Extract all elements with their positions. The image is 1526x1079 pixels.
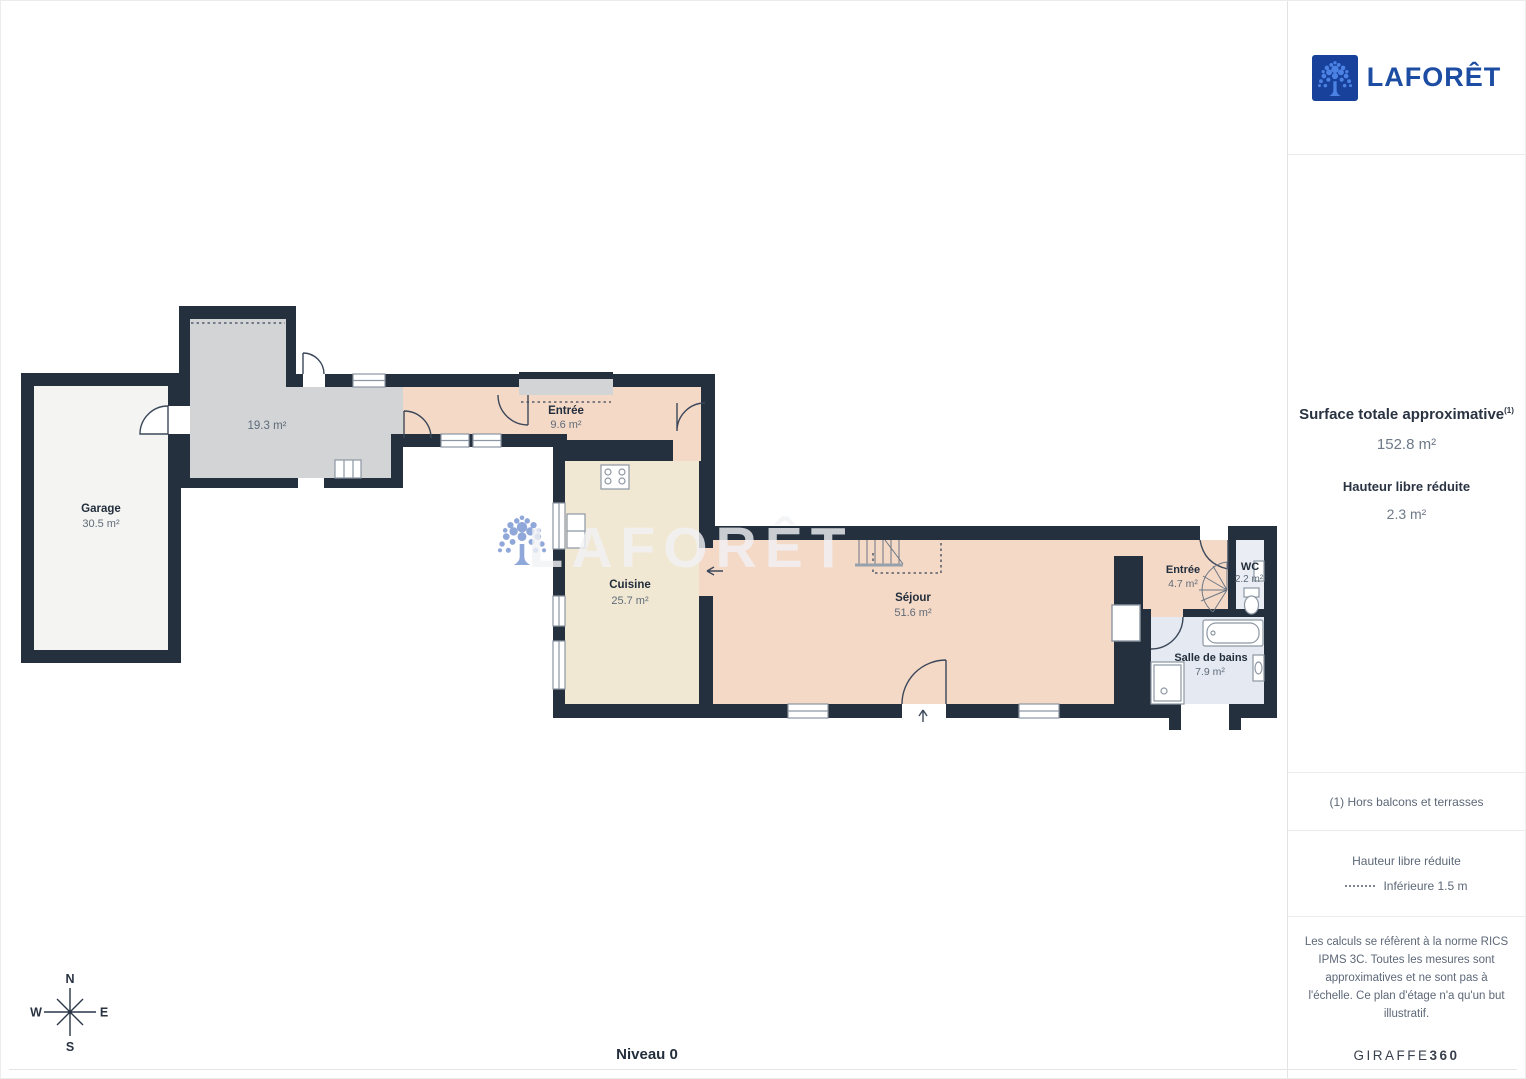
surface-note-ref: (1) xyxy=(1504,406,1514,415)
dotted-line-icon xyxy=(1345,885,1375,887)
legal-section: Les calculs se réfèrent à la norme RICS … xyxy=(1288,917,1525,1079)
room-area: 2.2 m² xyxy=(1235,574,1264,585)
info-panel: LAFORÊT Surface totale approximative(1) … xyxy=(1287,1,1525,1079)
legend-section: Hauteur libre réduite Inférieure 1.5 m xyxy=(1288,831,1525,917)
room-label: WC xyxy=(1241,561,1259,573)
brand-name: LAFORÊT xyxy=(1367,62,1502,93)
brand-logo: LAFORÊT xyxy=(1288,1,1525,155)
reduced-height-value: 2.3 m² xyxy=(1387,506,1427,522)
compass-icon: N S W E xyxy=(30,972,108,1054)
legend-title: Hauteur libre réduite xyxy=(1352,854,1461,868)
laforet-tree-logo-icon xyxy=(1312,55,1358,101)
surface-info-section: Surface totale approximative(1) 152.8 m²… xyxy=(1288,155,1525,773)
footnote-section: (1) Hors balcons et terrasses xyxy=(1288,773,1525,831)
room-label: Garage xyxy=(81,503,121,515)
compass-n: N xyxy=(65,972,74,986)
room-area: 19.3 m² xyxy=(248,420,287,432)
giraffe360-logo: GIRAFFE360 xyxy=(1353,1048,1459,1063)
room-label: Cuisine xyxy=(609,579,651,591)
room-area: 9.6 m² xyxy=(550,419,582,431)
compass-e: E xyxy=(100,1006,108,1020)
room-label: Séjour xyxy=(895,592,931,604)
room-area: 30.5 m² xyxy=(82,518,120,530)
disclaimer-text: Les calculs se réfèrent à la norme RICS … xyxy=(1303,934,1511,1023)
compass-w: W xyxy=(30,1006,42,1020)
legend-label: Inférieure 1.5 m xyxy=(1383,879,1467,893)
stove-icon xyxy=(601,465,629,489)
sink-icon xyxy=(1253,655,1264,681)
room-area: 51.6 m² xyxy=(894,607,932,619)
level-label: Niveau 0 xyxy=(616,1046,678,1063)
panel-icon xyxy=(335,460,361,478)
floorplan-drawing: Garage 30.5 m² 19.3 m² Entrée 9.6 m² Cui… xyxy=(1,1,1289,1079)
door-exterior-haut xyxy=(303,353,324,374)
room-area: 7.9 m² xyxy=(1195,666,1225,678)
room-label: Entrée xyxy=(1166,564,1200,576)
watermark: LAFORÊT xyxy=(498,515,854,580)
floorplan-page: Garage 30.5 m² 19.3 m² Entrée 9.6 m² Cui… xyxy=(0,0,1526,1079)
reduced-height-title: Hauteur libre réduite xyxy=(1343,479,1470,494)
room-area: 25.7 m² xyxy=(611,595,649,607)
footnote-text: (1) Hors balcons et terrasses xyxy=(1329,795,1483,809)
surface-value: 152.8 m² xyxy=(1377,436,1436,453)
room-19m2 xyxy=(190,319,403,478)
room-label: Salle de bains xyxy=(1174,652,1247,664)
door-panel-sejour xyxy=(1112,605,1140,641)
room-label: Entrée xyxy=(548,405,584,417)
watermark-text: LAFORÊT xyxy=(528,515,853,580)
shower-icon xyxy=(1151,662,1184,704)
bathtub-icon xyxy=(1203,620,1263,646)
compass-s: S xyxy=(66,1040,74,1054)
toilet-icon xyxy=(1244,588,1259,614)
floorplan-area: Garage 30.5 m² 19.3 m² Entrée 9.6 m² Cui… xyxy=(1,1,1289,1079)
surface-title: Surface totale approximative(1) xyxy=(1299,406,1514,423)
room-area: 4.7 m² xyxy=(1168,578,1198,590)
